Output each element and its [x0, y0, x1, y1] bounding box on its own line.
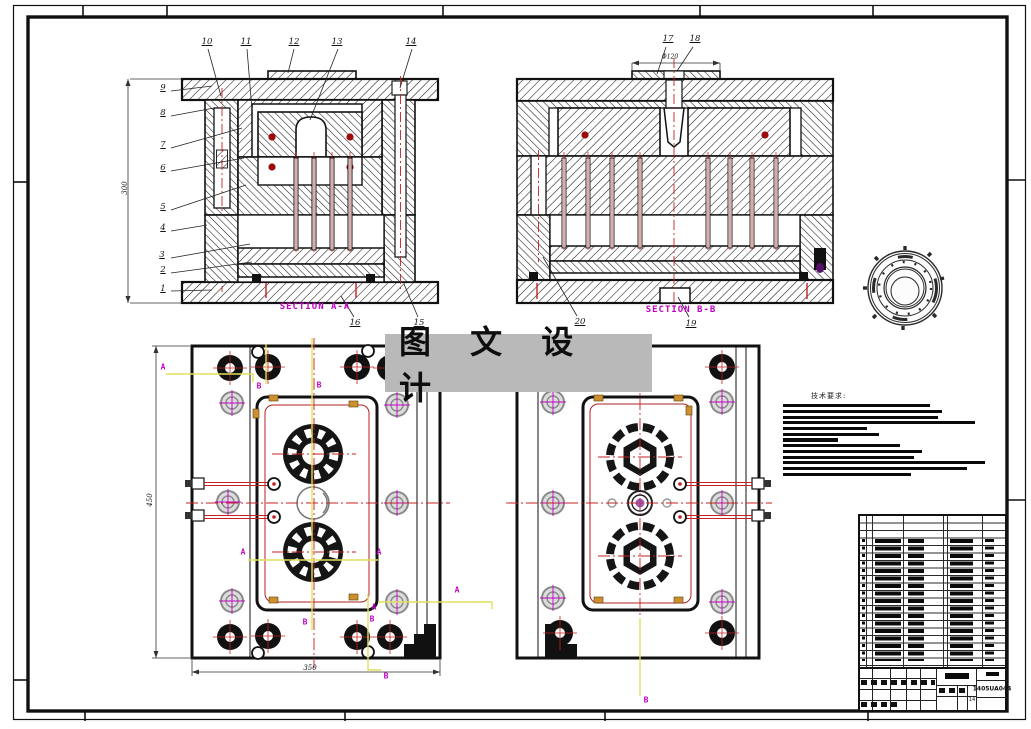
cut-marker-b: B — [370, 615, 375, 624]
part-label-5: 5 — [160, 202, 165, 212]
redacted-note-line — [783, 456, 914, 459]
part-label-3: 3 — [159, 250, 164, 260]
redacted-note-line — [783, 444, 900, 447]
sheet-code: 14 — [969, 697, 975, 703]
part-label-4: 4 — [160, 223, 165, 233]
redacted-signature-row — [861, 680, 935, 685]
part-label-6: 6 — [160, 163, 165, 173]
scale-cell: 14 — [937, 669, 977, 710]
cut-marker-a: A — [241, 548, 246, 557]
redacted-note-line — [783, 416, 938, 419]
redacted-note-line — [783, 461, 985, 464]
part-3d-view — [863, 246, 944, 330]
watermark-text: 图 文 设 计 — [399, 317, 652, 409]
part-label-11: 11 — [241, 37, 252, 47]
cut-marker-b: B — [644, 696, 649, 705]
bom-grid-line — [866, 516, 867, 667]
dim-ring-dia: Φ120 — [662, 54, 678, 61]
redacted-part-name — [945, 673, 969, 679]
part-label-12: 12 — [289, 37, 300, 47]
redacted-note-line — [783, 438, 838, 441]
redacted-note-line — [783, 450, 922, 453]
part-label-10: 10 — [202, 37, 213, 47]
signature-grid — [860, 669, 937, 710]
dim-plan-width: 350 — [303, 664, 316, 672]
part-label-19: 19 — [686, 319, 697, 329]
part-label-9: 9 — [160, 83, 165, 93]
section-b-title: SECTION B-B — [646, 305, 717, 315]
bom-col-remark — [985, 539, 994, 661]
redacted-note-line — [783, 404, 930, 407]
redacted-note-line — [783, 421, 975, 424]
redacted-note-line — [783, 467, 967, 470]
bom-table — [860, 516, 1005, 667]
title-block: 14 1405UA044 — [858, 514, 1007, 712]
part-label-2: 2 — [160, 265, 165, 275]
part-label-1: 1 — [160, 284, 165, 294]
cut-marker-a: A — [455, 586, 460, 595]
redacted-signature-row — [861, 702, 901, 707]
part-label-16: 16 — [350, 318, 361, 328]
bom-grid-line — [947, 516, 948, 667]
drawing-number-cell: 1405UA044 — [977, 669, 1007, 710]
part-label-13: 13 — [332, 37, 343, 47]
bom-grid-line — [943, 516, 944, 667]
part-label-18: 18 — [690, 34, 701, 44]
redacted-note-line — [783, 410, 942, 413]
redacted-note-line — [783, 433, 879, 436]
bom-col-index — [862, 539, 866, 661]
redacted-scale-row — [939, 688, 967, 693]
cut-marker-b: B — [384, 672, 389, 681]
bom-col-name — [875, 539, 901, 661]
cut-marker-b: B — [303, 618, 308, 627]
part-label-8: 8 — [160, 108, 165, 118]
dim-section-height: 300 — [121, 181, 129, 194]
drawing-sheet: 10 11 12 13 14 9 8 7 6 5 4 3 2 1 16 15 1… — [0, 0, 1031, 729]
bom-col-material — [950, 539, 973, 661]
technical-notes-title: 技术要求: — [811, 391, 846, 401]
cut-marker-a: A — [161, 363, 166, 372]
technical-notes: 技术要求: — [783, 390, 993, 485]
bom-grid-line — [872, 516, 873, 667]
cut-marker-b: B — [317, 381, 322, 390]
part-label-7: 7 — [160, 140, 165, 150]
redacted-mark — [986, 672, 999, 676]
part-label-17: 17 — [663, 34, 674, 44]
section-a-title: SECTION A-A — [280, 302, 351, 312]
bom-grid-line — [982, 516, 983, 667]
watermark-banner: 图 文 设 计 — [385, 334, 652, 392]
section-a-view — [126, 49, 439, 317]
title-block-bottom: 14 1405UA044 — [860, 667, 1005, 712]
cut-marker-a: A — [377, 548, 382, 557]
cut-marker-b: B — [257, 382, 262, 391]
redacted-note-line — [783, 427, 867, 430]
redacted-note-line — [783, 473, 911, 476]
bom-grid-line — [903, 516, 904, 667]
drawing-number: 1405UA044 — [973, 686, 1012, 693]
section-b-view — [517, 47, 833, 317]
cut-marker-a: A — [372, 603, 377, 612]
bom-col-qty — [908, 539, 924, 661]
dim-plan-height: 450 — [146, 493, 154, 506]
part-label-14: 14 — [406, 37, 417, 47]
